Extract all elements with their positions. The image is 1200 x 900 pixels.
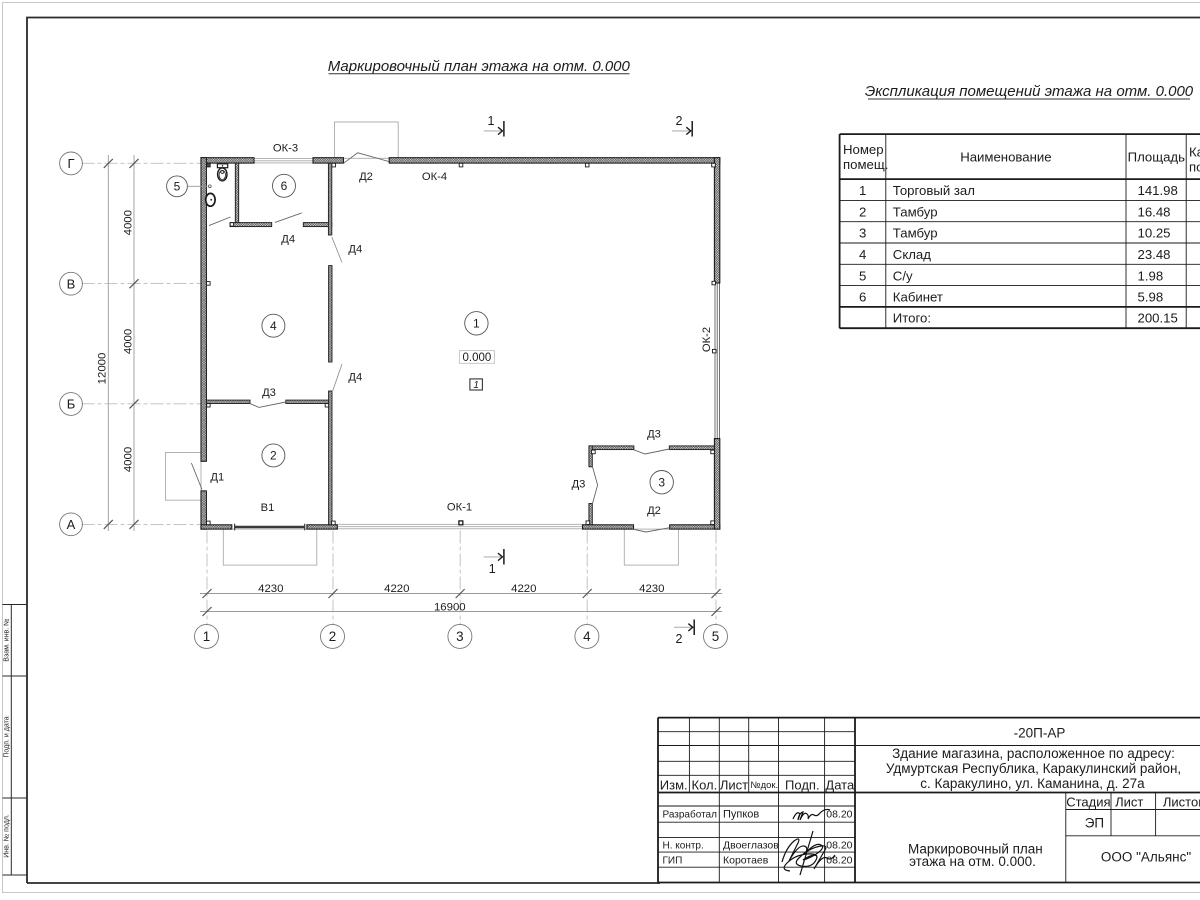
svg-text:Листов: Листов xyxy=(1163,795,1200,810)
svg-text:Маркировочный план этажа на от: Маркировочный план этажа на отм. 0.000 xyxy=(328,58,631,75)
svg-text:1: 1 xyxy=(489,562,496,576)
svg-text:1: 1 xyxy=(203,629,210,644)
svg-text:Д3: Д3 xyxy=(572,479,586,491)
svg-text:141.98: 141.98 xyxy=(1138,183,1178,198)
svg-text:2: 2 xyxy=(270,449,277,463)
svg-text:Тамбур: Тамбур xyxy=(893,226,938,241)
svg-text:Тамбур: Тамбур xyxy=(893,204,938,219)
svg-text:4220: 4220 xyxy=(511,583,536,595)
svg-text:Лист: Лист xyxy=(720,777,748,792)
svg-text:Склад: Склад xyxy=(893,247,931,262)
svg-text:2: 2 xyxy=(859,204,866,219)
svg-text:Итого:: Итого: xyxy=(893,311,931,326)
svg-text:4220: 4220 xyxy=(384,583,409,595)
svg-text:Наименование: Наименование xyxy=(960,150,1051,165)
svg-text:С/у: С/у xyxy=(893,268,913,283)
svg-text:Д2: Д2 xyxy=(359,171,373,183)
svg-text:4230: 4230 xyxy=(639,583,664,595)
svg-text:Кат: Кат xyxy=(1189,145,1200,160)
svg-text:ОК-3: ОК-3 xyxy=(273,143,298,155)
svg-text:1: 1 xyxy=(488,114,495,128)
svg-text:4: 4 xyxy=(583,629,591,644)
svg-text:с. Каракулино, ул. Каманина, д: с. Каракулино, ул. Каманина, д. 27а xyxy=(920,776,1145,791)
svg-text:помещ.: помещ. xyxy=(843,157,888,172)
svg-text:0.000: 0.000 xyxy=(463,352,492,364)
svg-text:Стадия: Стадия xyxy=(1066,795,1110,810)
svg-text:Экспликация помещений этажа на: Экспликация помещений этажа на отм. 0.00… xyxy=(865,83,1194,100)
svg-text:Удмуртская Республика, Каракул: Удмуртская Республика, Каракулинский рай… xyxy=(886,761,1181,776)
svg-text:1: 1 xyxy=(473,380,479,391)
svg-text:Изм.: Изм. xyxy=(660,777,688,792)
svg-text:6: 6 xyxy=(281,179,288,193)
svg-text:В1: В1 xyxy=(261,502,275,514)
svg-text:Подп. и дата: Подп. и дата xyxy=(4,716,11,757)
svg-text:ОК-4: ОК-4 xyxy=(422,171,447,183)
svg-text:Пупков: Пупков xyxy=(723,809,759,821)
svg-text:12000: 12000 xyxy=(96,353,108,385)
svg-text:Здание магазина, расположенное: Здание магазина, расположенное по адресу… xyxy=(892,746,1175,761)
svg-text:Д4: Д4 xyxy=(348,372,362,384)
svg-text:ООО "Альянс": ООО "Альянс" xyxy=(1101,849,1191,864)
svg-text:ОК-2: ОК-2 xyxy=(701,327,713,352)
svg-text:Двоеглазов: Двоеглазов xyxy=(723,839,779,851)
svg-text:4000: 4000 xyxy=(122,210,134,235)
svg-text:Площадь: Площадь xyxy=(1128,150,1186,165)
svg-text:ОК-1: ОК-1 xyxy=(447,502,472,514)
svg-text:№док.: №док. xyxy=(750,780,778,791)
svg-text:200.15: 200.15 xyxy=(1138,311,1178,326)
svg-text:23.48: 23.48 xyxy=(1138,247,1171,262)
svg-text:08.20: 08.20 xyxy=(826,809,852,821)
svg-text:пом: пом xyxy=(1189,160,1200,175)
svg-text:Лист: Лист xyxy=(1115,795,1143,810)
svg-text:Г: Г xyxy=(67,156,74,171)
svg-text:16900: 16900 xyxy=(434,602,466,614)
svg-text:Б: Б xyxy=(67,397,76,412)
svg-text:4000: 4000 xyxy=(122,329,134,354)
svg-text:Н. контр.: Н. контр. xyxy=(663,840,704,851)
svg-text:16.48: 16.48 xyxy=(1138,204,1171,219)
svg-text:6: 6 xyxy=(859,290,866,305)
svg-text:ЭП: ЭП xyxy=(1085,816,1104,831)
svg-text:Коротаев: Коротаев xyxy=(723,855,769,867)
svg-text:2: 2 xyxy=(676,632,683,646)
svg-text:5: 5 xyxy=(712,629,719,644)
svg-text:А: А xyxy=(67,517,76,532)
svg-text:5.98: 5.98 xyxy=(1138,290,1164,305)
svg-text:10.25: 10.25 xyxy=(1138,226,1171,241)
svg-text:Дата: Дата xyxy=(825,777,855,792)
svg-text:3: 3 xyxy=(658,476,665,490)
svg-text:08.20: 08.20 xyxy=(826,839,852,851)
svg-text:5: 5 xyxy=(174,180,181,194)
svg-text:Подп.: Подп. xyxy=(785,777,820,792)
svg-text:1.98: 1.98 xyxy=(1138,268,1164,283)
svg-text:2: 2 xyxy=(676,114,683,128)
svg-text:3: 3 xyxy=(859,226,866,241)
svg-text:-20П-АР: -20П-АР xyxy=(1014,725,1066,740)
svg-text:1: 1 xyxy=(473,317,480,331)
svg-text:2: 2 xyxy=(329,629,336,644)
svg-text:Разработал: Разработал xyxy=(663,809,718,821)
svg-text:5: 5 xyxy=(859,268,866,283)
svg-text:ГИП: ГИП xyxy=(663,856,683,867)
svg-text:4: 4 xyxy=(859,247,866,262)
svg-text:4000: 4000 xyxy=(122,447,134,472)
svg-text:Взам. инв. №: Взам. инв. № xyxy=(4,618,11,661)
svg-text:3: 3 xyxy=(456,629,463,644)
svg-text:4230: 4230 xyxy=(258,583,283,595)
svg-text:Номер: Номер xyxy=(843,142,884,157)
svg-text:Д3: Д3 xyxy=(262,387,276,399)
svg-text:Инв. № подл.: Инв. № подл. xyxy=(4,814,11,858)
svg-text:Торговый зал: Торговый зал xyxy=(893,183,975,198)
svg-text:Д1: Д1 xyxy=(210,472,224,484)
svg-text:Д2: Д2 xyxy=(647,505,661,517)
svg-text:Кол.: Кол. xyxy=(692,777,718,792)
svg-text:Д3: Д3 xyxy=(647,429,661,441)
svg-text:4: 4 xyxy=(270,319,277,333)
svg-text:В: В xyxy=(67,276,76,291)
svg-text:этажа на отм. 0.000.: этажа на отм. 0.000. xyxy=(909,854,1036,869)
svg-text:Д4: Д4 xyxy=(281,234,295,246)
svg-text:Д4: Д4 xyxy=(348,244,362,256)
svg-text:08.20: 08.20 xyxy=(826,855,852,867)
svg-text:Кабинет: Кабинет xyxy=(893,290,943,305)
svg-text:1: 1 xyxy=(859,183,866,198)
